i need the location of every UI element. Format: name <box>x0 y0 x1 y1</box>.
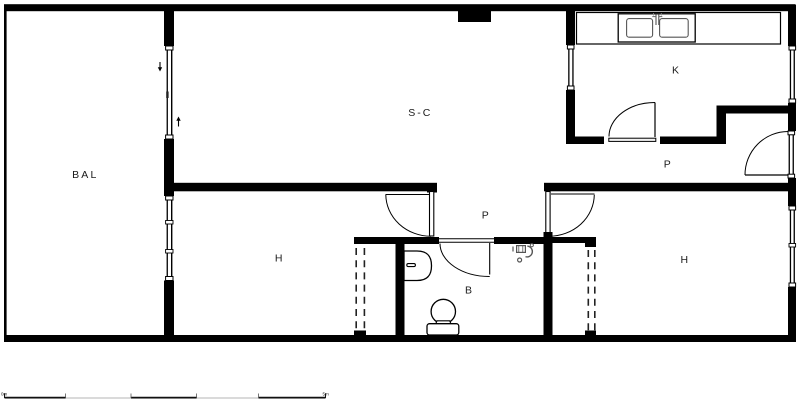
svg-text:P: P <box>482 210 489 222</box>
svg-text:BAL: BAL <box>72 169 98 181</box>
svg-text:B: B <box>465 285 472 297</box>
svg-text:P: P <box>664 159 671 171</box>
svg-text:0m: 0m <box>1 392 8 397</box>
svg-text:S-C: S-C <box>408 107 432 119</box>
svg-text:5m: 5m <box>323 392 330 397</box>
svg-text:H: H <box>275 253 283 265</box>
svg-text:H: H <box>681 254 689 266</box>
svg-text:K: K <box>672 64 679 76</box>
